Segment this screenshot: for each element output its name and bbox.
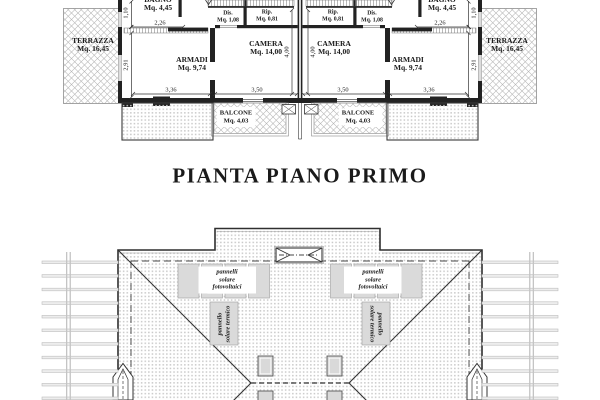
pv-left-label: pannelli solare fotovoltaici <box>207 267 246 294</box>
room-name: BALCONE <box>342 109 375 117</box>
pv-right-label: pannelli solare fotovoltaici <box>353 267 392 294</box>
architectural-drawing: TERRAZZA Mq. 16,45 TERRAZZA Mq. 16,45 BA… <box>0 0 600 400</box>
thermal-right-label: pannello solare termico <box>368 306 383 343</box>
dim-291-right: 2,91 <box>470 59 477 70</box>
room-area: Mq. 4,45 <box>428 4 456 12</box>
dim-400-right: 4,00 <box>309 46 316 57</box>
rip-right-label: Rip. Mq. 0,81 <box>322 9 344 22</box>
room-area: Mq. 1,08 <box>217 17 239 24</box>
room-area: Mq. 0,81 <box>322 16 344 23</box>
thermal-left-label: pannello solare termico <box>216 306 231 343</box>
armadi-left-label: ARMADI Mq. 9,74 <box>176 56 208 73</box>
balcone-right-label: BALCONE Mq. 4,03 <box>339 108 378 125</box>
dim-226-left: 2,26 <box>154 19 165 26</box>
camera-right-label: CAMERA Mq. 14,00 <box>317 40 351 57</box>
room-name: BALCONE <box>220 109 253 117</box>
room-name: Rip. <box>322 9 344 16</box>
dis-left-label: Dis. Mq. 1,08 <box>217 10 239 23</box>
camera-left-label: CAMERA Mq. 14,00 <box>249 40 283 57</box>
room-area: Mq. 0,81 <box>256 16 278 23</box>
page-title: PIANTA PIANO PRIMO <box>172 164 427 187</box>
dim-226-right: 2,26 <box>434 19 445 26</box>
room-name: Rip. <box>256 9 278 16</box>
pergola-left <box>42 261 118 400</box>
dis-right-label: Dis. Mq. 1,08 <box>361 10 383 23</box>
dim-350-left: 3,50 <box>251 86 262 93</box>
room-name: Dis. <box>217 10 239 17</box>
dim-110-left: 1,10 <box>122 7 129 18</box>
dim-350-right: 3,50 <box>337 86 348 93</box>
terrazza-right-label: TERRAZZA Mq. 16,45 <box>486 37 528 54</box>
drawing-linework <box>0 0 600 400</box>
balcone-left-label: BALCONE Mq. 4,03 <box>217 108 256 125</box>
rip-left-label: Rip. Mq. 0,81 <box>256 9 278 22</box>
dim-400-left: 4,00 <box>283 46 290 57</box>
armadi-right-label: ARMADI Mq. 9,74 <box>392 56 424 73</box>
bagno-left-label: BAGNO Mq. 4,45 <box>144 0 172 13</box>
room-area: Mq. 16,45 <box>72 45 114 53</box>
dim-291-left: 2,91 <box>122 59 129 70</box>
dim-336-right: 3,36 <box>423 86 434 93</box>
room-area: Mq. 4,03 <box>220 117 253 125</box>
room-area: Mq. 9,74 <box>392 64 424 72</box>
room-area: Mq. 14,00 <box>249 48 283 56</box>
bagno-right-label: BAGNO Mq. 4,45 <box>428 0 456 13</box>
room-area: Mq. 1,08 <box>361 17 383 24</box>
room-area: Mq. 14,00 <box>317 48 351 56</box>
terrazza-left-label: TERRAZZA Mq. 16,45 <box>72 37 114 54</box>
room-name: Dis. <box>361 10 383 17</box>
room-area: Mq. 4,03 <box>342 117 375 125</box>
room-area: Mq. 9,74 <box>176 64 208 72</box>
room-area: Mq. 16,45 <box>486 45 528 53</box>
dim-336-left: 3,36 <box>165 86 176 93</box>
ridge-skylight <box>275 247 324 264</box>
dim-110-right: 1,10 <box>470 7 477 18</box>
room-area: Mq. 4,45 <box>144 4 172 12</box>
